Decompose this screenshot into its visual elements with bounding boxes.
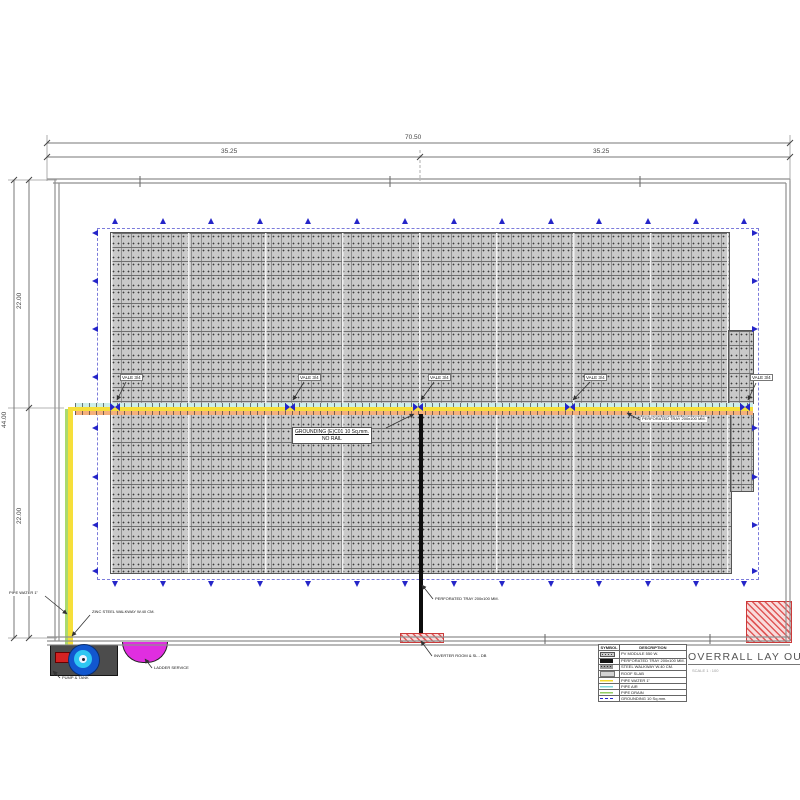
array-marker-icon [92, 474, 98, 480]
array-marker-icon [354, 218, 360, 224]
valve-icon [285, 403, 295, 412]
drawing-title: OVERRALL LAY OUT [688, 651, 800, 665]
array-marker-icon [752, 474, 758, 480]
valve-label-5: VALE 3/4 [750, 374, 773, 381]
legend-swatch-blue-dash [600, 698, 613, 701]
dim-overall-height: 44.00 [1, 411, 8, 429]
legend-description: ROOF SLAB [620, 670, 687, 678]
valve-label-2: VALE 3/4 [298, 374, 321, 381]
inverter-cable-run [419, 414, 423, 634]
legend-swatch-gray [600, 671, 615, 677]
array-marker-icon [92, 374, 98, 380]
array-marker-icon [160, 218, 166, 224]
array-marker-icon [752, 230, 758, 236]
array-marker-icon [548, 581, 554, 587]
legend-row: GROUNDING 10 Sq.mm. [599, 696, 687, 702]
array-marker-icon [112, 581, 118, 587]
pump-tank-label: PUMP & TANK [61, 676, 90, 681]
pipe-vertical-yellow [68, 411, 73, 645]
array-marker-icon [752, 568, 758, 574]
array-marker-icon [208, 218, 214, 224]
grounding-note-line1: GROUNDING (E)C01 10 Sq.mm. [295, 429, 369, 436]
array-marker-icon [752, 278, 758, 284]
legend-swatch-gray-dot [600, 665, 613, 669]
dim-left-half: 35.25 [220, 148, 238, 155]
legend-swatch-cyan-line [600, 685, 613, 689]
valve-label-4: VALE 3/4 [584, 374, 607, 381]
array-marker-icon [596, 218, 602, 224]
array-marker-icon [645, 581, 651, 587]
legend-description: PV MODULE 550 W. [620, 651, 687, 659]
array-marker-icon [752, 326, 758, 332]
array-marker-icon [741, 218, 747, 224]
valve-label-3: VALE 3/4 [428, 374, 451, 381]
perforated-tray-label-center: PERFORATED TRAY 200x100 MM. [434, 597, 500, 602]
legend-symbol-cell [599, 651, 620, 659]
dim-lower-half: 22.00 [16, 507, 23, 525]
legend-row: ROOF SLAB [599, 670, 687, 678]
legend-symbol-cell [599, 670, 620, 678]
pv-panel-block-upper-extension [728, 330, 754, 404]
legend-swatch-green-line [600, 691, 613, 695]
pv-panel-block-upper [110, 232, 730, 404]
inverter-room-label: INVERTER ROOM & SL - DB [433, 654, 487, 659]
valve-label-1: VALE 3/4 [120, 374, 143, 381]
array-marker-icon [354, 581, 360, 587]
legend-symbol-cell [599, 696, 620, 702]
dim-upper-half: 22.00 [16, 292, 23, 310]
inverter-room-hatch [400, 633, 444, 643]
corner-room-hatch [746, 601, 792, 643]
legend-swatch-panel [600, 652, 615, 658]
drawing-scale: SCALE 1 : 100 [692, 668, 718, 673]
array-marker-icon [693, 581, 699, 587]
array-marker-icon [92, 278, 98, 284]
legend-table: SYMBOL DESCRIPTION PV MODULE 550 W.PERFO… [598, 644, 687, 702]
array-marker-icon [693, 218, 699, 224]
array-marker-icon [160, 581, 166, 587]
array-marker-icon [208, 581, 214, 587]
valve-icon [413, 403, 423, 412]
legend-swatch-black [600, 659, 613, 663]
dim-overall-width: 70.50 [404, 134, 422, 141]
ladder-service-dome [122, 642, 168, 663]
grounding-note: GROUNDING (E)C01 10 Sq.mm. NO RAIL [292, 427, 372, 444]
legend-row: PV MODULE 550 W. [599, 651, 687, 659]
array-marker-icon [92, 230, 98, 236]
array-marker-icon [451, 218, 457, 224]
walkway-label: ZINC STEEL WALKWAY W.40 CM. [91, 610, 156, 615]
perforated-tray-label-right: PERFORATED TRAY 200x100 MM. [641, 417, 707, 422]
ladder-service-label: LADDER SERVICE [153, 666, 190, 671]
array-marker-icon [596, 581, 602, 587]
array-marker-icon [548, 218, 554, 224]
array-marker-icon [257, 218, 263, 224]
drawing-sheet: 70.50 35.25 35.25 44.00 22.00 22.00 VALE… [0, 0, 800, 800]
array-marker-icon [451, 581, 457, 587]
array-marker-icon [499, 218, 505, 224]
array-marker-icon [92, 568, 98, 574]
dim-right-half: 35.25 [592, 148, 610, 155]
valve-icon [740, 403, 750, 412]
array-marker-icon [645, 218, 651, 224]
array-marker-icon [402, 581, 408, 587]
array-marker-icon [741, 581, 747, 587]
legend-swatch-yellow-line [600, 679, 613, 683]
array-marker-icon [92, 326, 98, 332]
valve-icon [565, 403, 575, 412]
array-marker-icon [752, 425, 758, 431]
array-marker-icon [499, 581, 505, 587]
array-marker-icon [92, 425, 98, 431]
legend-description: GROUNDING 10 Sq.mm. [620, 696, 687, 702]
array-marker-icon [257, 581, 263, 587]
array-marker-icon [112, 218, 118, 224]
grounding-note-line2: NO RAIL [295, 436, 369, 443]
array-marker-icon [305, 218, 311, 224]
array-marker-icon [305, 581, 311, 587]
array-marker-icon [402, 218, 408, 224]
pipe-water-label: PIPE WATER 1" [8, 591, 39, 596]
array-marker-icon [92, 522, 98, 528]
array-marker-icon [752, 522, 758, 528]
valve-icon [110, 403, 120, 412]
tank-center-dot [82, 658, 85, 661]
pv-panel-block-lower-extension [730, 413, 754, 492]
